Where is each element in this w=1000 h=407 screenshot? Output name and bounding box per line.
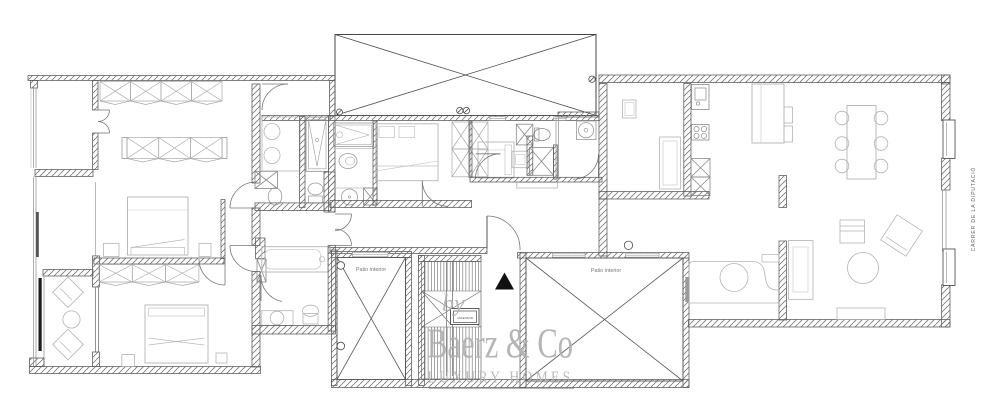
svg-text:Patio interior: Patio interior [591,268,621,274]
svg-text:Baerz & Co: Baerz & Co [427,322,573,368]
svg-text:Patio interior: Patio interior [356,267,386,273]
svg-text:LUXURY HOMES: LUXURY HOMES [428,368,574,387]
svg-text:CARRER DE LA DIPUTACIÓ: CARRER DE LA DIPUTACIÓ [970,167,977,252]
svg-text:by: by [442,291,465,317]
